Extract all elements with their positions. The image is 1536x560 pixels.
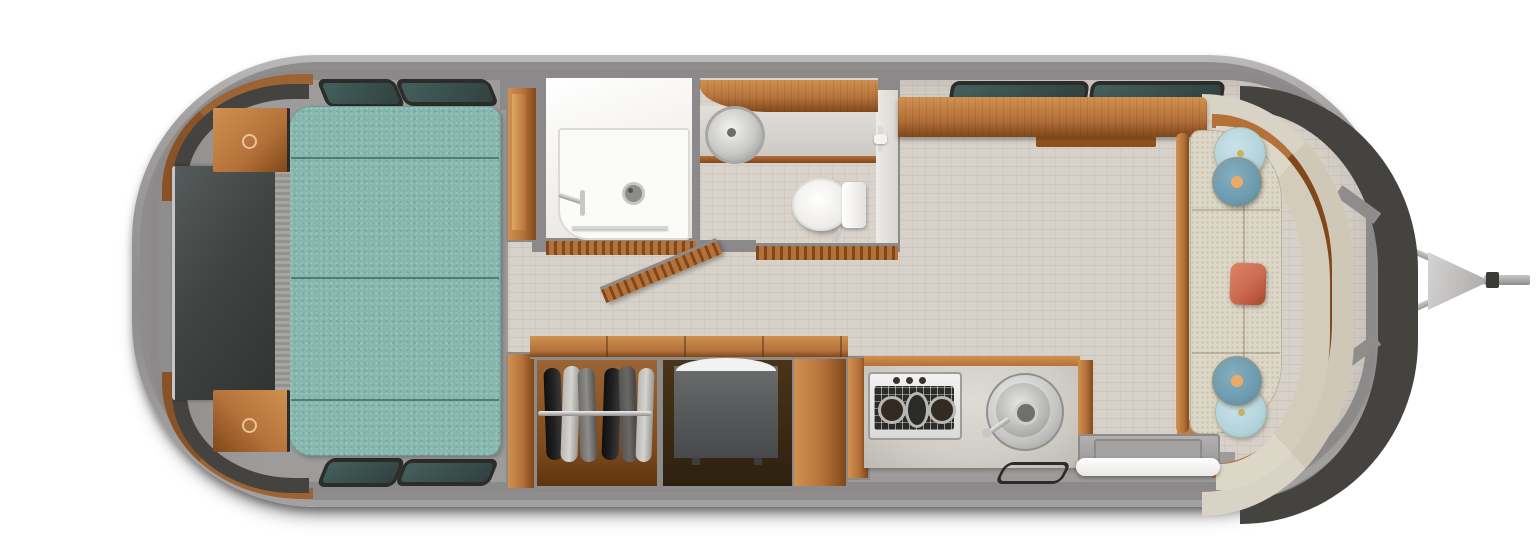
coupler-triangle-icon: [1428, 252, 1490, 310]
dresser-foot-right: [754, 458, 762, 465]
tambour-door-shower: [546, 238, 696, 255]
bed-window-top-2: [395, 79, 500, 106]
kitchen-sink-drain-icon: [1014, 401, 1038, 425]
pantry-panel: [792, 352, 848, 488]
bed-window-bottom-2: [395, 459, 500, 486]
head-side-cabinet-shelf: [512, 94, 526, 230]
bathroom-sink-drain-icon: [727, 128, 736, 137]
burner-middle-icon: [905, 392, 929, 428]
nightstand-top-knob-icon: [242, 134, 257, 149]
paper-roll-icon: [874, 134, 887, 144]
bed-window-bottom-1: [316, 458, 406, 487]
floor-vent: [994, 462, 1072, 484]
wardrobe-countertop: [530, 336, 848, 359]
pillow-round-steel-bottom-button-icon: [1231, 375, 1243, 387]
kitchen-faucet-base-icon: [982, 428, 992, 438]
tambour-door-toilet: [756, 243, 898, 260]
cooktop-knob-3-icon: [919, 377, 926, 384]
pillow-round-light-bottom-button-icon: [1238, 409, 1245, 416]
overhead-shelf: [1036, 136, 1156, 147]
bed-seam-3: [291, 399, 499, 401]
sofa-seat-seam-2: [1192, 352, 1280, 354]
kitchen-counter-back-edge: [864, 356, 1080, 366]
burner-left-icon: [878, 396, 906, 424]
shower-valve-icon: [580, 190, 585, 216]
dresser-cabinet: [674, 366, 778, 458]
clothes-rod-icon: [538, 411, 652, 416]
toilet-room-right-wall: [876, 90, 898, 244]
pillow-round-light-top-button-icon: [1237, 150, 1244, 157]
trailer-floorplan: [0, 0, 1536, 560]
burner-right-icon: [928, 396, 956, 424]
shower-drain-icon: [622, 182, 645, 205]
cooktop-knob-2-icon: [906, 377, 913, 384]
entry-step-white: [1076, 458, 1220, 476]
toilet-tank-icon: [842, 182, 866, 228]
bed-seam-2: [291, 277, 499, 279]
dresser-foot-left: [692, 458, 700, 465]
wardrobe-left-panel: [506, 352, 536, 490]
shower-pan: [558, 128, 690, 240]
overhead-cabinet: [898, 97, 1207, 137]
sofa-left-rail: [1176, 133, 1189, 433]
sofa-seat-seam-1: [1192, 209, 1280, 211]
cooktop-knob-1-icon: [893, 377, 900, 384]
pillow-lumbar-orange: [1229, 262, 1266, 305]
headboard: [275, 170, 290, 396]
bed-window-top-1: [316, 79, 406, 108]
pillow-round-steel-top-button-icon: [1231, 176, 1243, 188]
shower-drain-center-icon: [628, 188, 633, 193]
bed-seam-1: [291, 157, 499, 159]
tv-panel: [172, 166, 277, 400]
nightstand-bottom-knob-icon: [242, 418, 257, 433]
hitch-coupler-latch: [1486, 272, 1499, 288]
towel-bar-icon: [572, 226, 668, 229]
